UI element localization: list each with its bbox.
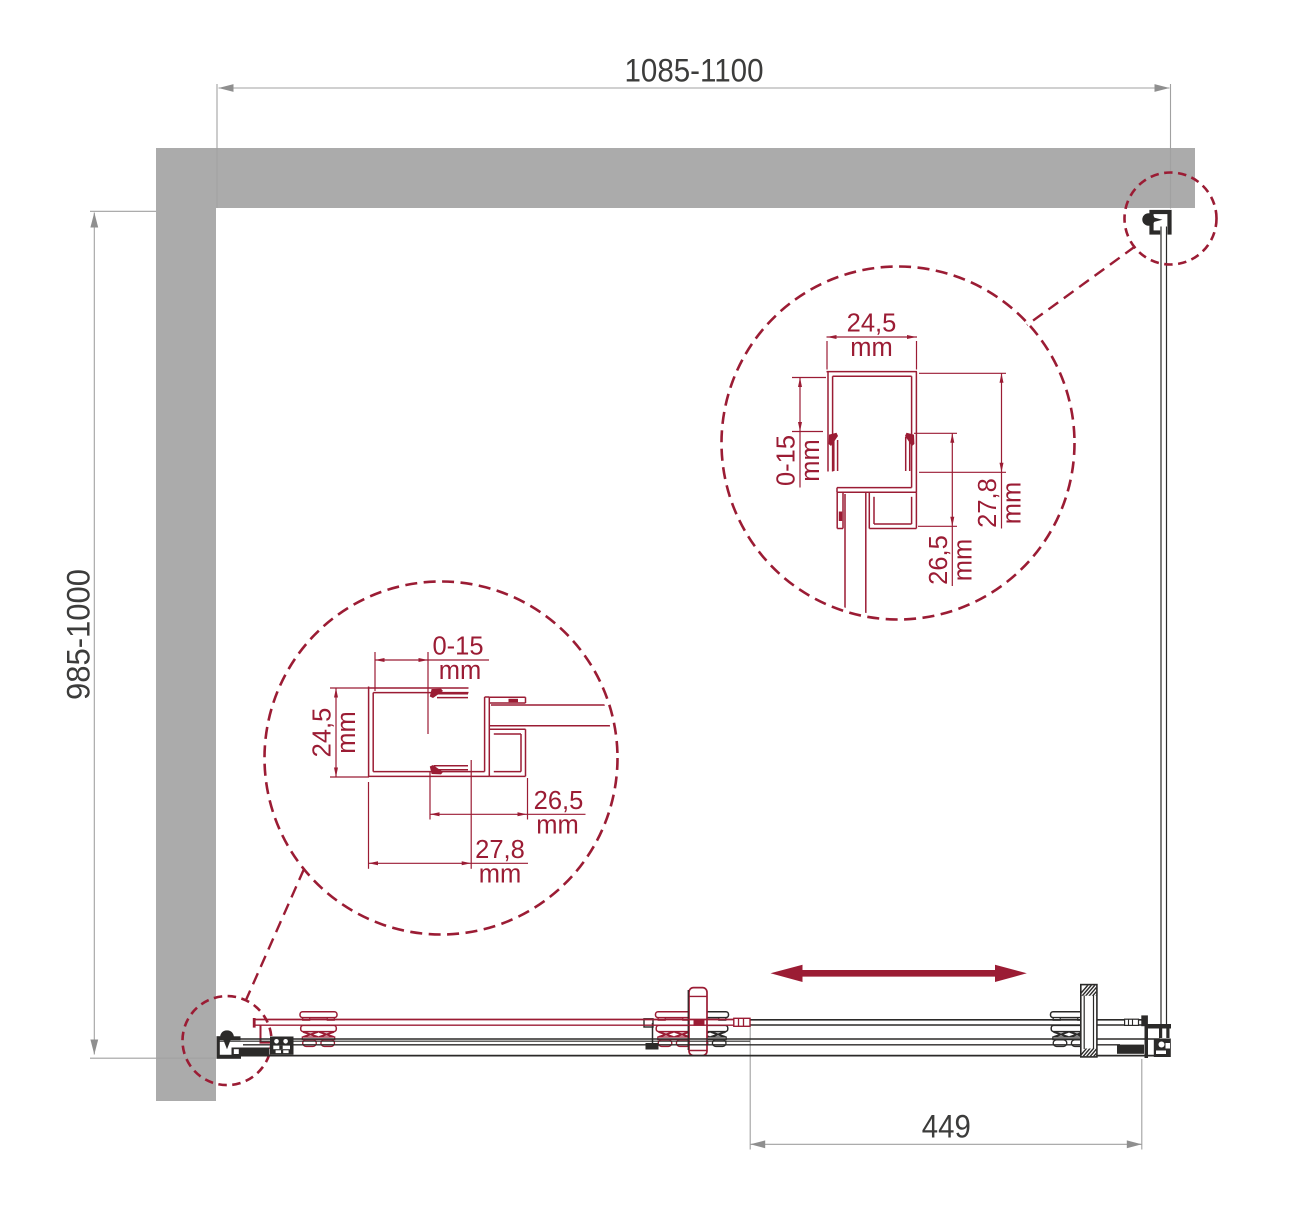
svg-text:449: 449 — [922, 1109, 971, 1145]
svg-text:mm: mm — [333, 711, 361, 753]
svg-text:mm: mm — [536, 811, 578, 839]
svg-text:1085-1100: 1085-1100 — [625, 53, 764, 89]
svg-text:mm: mm — [850, 334, 892, 362]
svg-text:985-1000: 985-1000 — [61, 569, 97, 700]
svg-text:mm: mm — [949, 539, 977, 581]
svg-text:mm: mm — [479, 860, 521, 888]
svg-text:mm: mm — [439, 657, 481, 685]
svg-text:mm: mm — [797, 439, 825, 481]
svg-text:mm: mm — [999, 482, 1027, 524]
